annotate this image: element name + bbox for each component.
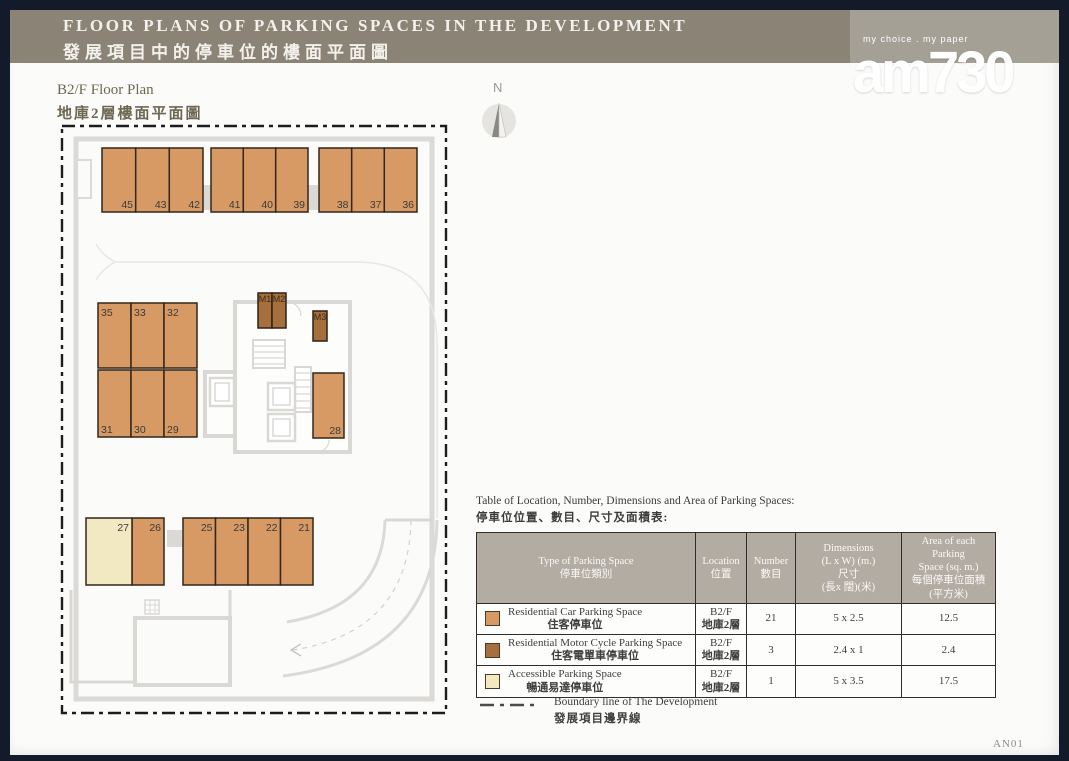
page-title-en: FLOOR PLANS OF PARKING SPACES IN THE DEV…	[63, 16, 687, 36]
number-cell: 1	[747, 666, 796, 697]
loc-en: B2/F	[700, 637, 742, 650]
page-title-zh: 發展項目中的停車位的樓面平面圖	[63, 38, 687, 63]
stall-label: 35	[101, 307, 113, 319]
stall-label: 42	[188, 199, 200, 211]
logo-wordmark: am730	[853, 44, 1053, 99]
stall-label: 28	[329, 425, 341, 437]
area-cell: 12.5	[902, 603, 996, 634]
floor-plan-title-en: B2/F Floor Plan	[57, 82, 203, 99]
col-area: Area of each Parking Space (sq. m.) 每個停車…	[902, 533, 996, 604]
legend-boundary-en: Boundary line of The Development	[554, 696, 717, 708]
stall-label: 27	[117, 522, 129, 534]
stall-label: 31	[101, 424, 113, 436]
parking-table-section: Table of Location, Number, Dimensions an…	[476, 495, 1011, 698]
number-cell: 21	[747, 603, 796, 634]
type-zh: 住客停車位	[508, 619, 642, 632]
stall-label: 29	[167, 424, 179, 436]
car-swatch	[485, 611, 500, 626]
stall-label: 43	[155, 199, 167, 211]
north-label: N	[493, 80, 502, 95]
area-cell: 17.5	[902, 666, 996, 697]
moto-swatch	[485, 643, 500, 658]
loc-zh: 地庫2層	[700, 619, 742, 632]
stall-label: 21	[298, 522, 310, 534]
loc-zh: 地庫2層	[700, 682, 742, 695]
wall-notch	[77, 160, 91, 198]
stall-label: M3	[314, 312, 327, 322]
loc-en: B2/F	[700, 606, 742, 619]
col-number: Number 數目	[747, 533, 796, 604]
stall-label: 23	[233, 522, 245, 534]
boundary-legend: Boundary line of The Development 發展項目邊界線	[480, 696, 717, 726]
stall-label: 25	[201, 522, 213, 534]
stall-label: 38	[337, 199, 349, 211]
table-row: Residential Car Parking Space 住客停車位 B2/F…	[477, 603, 996, 634]
dimensions-cell: 5 x 2.5	[796, 603, 902, 634]
floor-plan-title: B2/F Floor Plan 地庫2層樓面平面圖	[57, 82, 203, 123]
document-page: FLOOR PLANS OF PARKING SPACES IN THE DEV…	[10, 10, 1059, 755]
stall-label: 39	[293, 199, 305, 211]
table-header-row: Type of Parking Space 停車位類別 Location 位置 …	[477, 533, 996, 604]
stall-label: 33	[134, 307, 146, 319]
stall-label: 26	[149, 522, 161, 534]
type-en: Accessible Parking Space	[508, 668, 622, 681]
number-cell: 3	[747, 635, 796, 666]
dimensions-cell: 2.4 x 1	[796, 635, 902, 666]
stall-label: 30	[134, 424, 146, 436]
floor-plan-drawing: 45 43 42 41 40 39 38 37 36 35 33 32 31 3…	[55, 120, 465, 750]
stall-label: M1	[259, 294, 272, 304]
col-location: Location 位置	[696, 533, 747, 604]
table-title-zh: 停車位位置、數目、尺寸及面積表:	[476, 509, 1011, 525]
type-zh: 暢通易達停車位	[508, 682, 622, 695]
type-en: Residential Motor Cycle Parking Space	[508, 637, 682, 650]
table-row: Accessible Parking Space 暢通易達停車位 B2/F 地庫…	[477, 666, 996, 697]
col-dimensions: Dimensions (L x W) (m.) 尺寸 (長x 闊)(米)	[796, 533, 902, 604]
page-code: AN01	[993, 738, 1024, 750]
type-en: Residential Car Parking Space	[508, 606, 642, 619]
type-zh: 住客電單車停車位	[508, 650, 682, 663]
north-arrow: N	[477, 80, 521, 144]
loc-en: B2/F	[700, 668, 742, 681]
boundary-line-icon	[480, 702, 540, 708]
stall-label: 36	[402, 199, 414, 211]
stall-label: M2	[273, 294, 286, 304]
stall-label: 41	[229, 199, 241, 211]
legend-boundary-zh: 發展項目邊界線	[554, 710, 717, 726]
dimensions-cell: 5 x 3.5	[796, 666, 902, 697]
parking-table: Type of Parking Space 停車位類別 Location 位置 …	[476, 532, 996, 698]
am730-logo: my choice . my paper am730	[853, 34, 1053, 97]
accessible-swatch	[485, 674, 500, 689]
loc-zh: 地庫2層	[700, 650, 742, 663]
page-title: FLOOR PLANS OF PARKING SPACES IN THE DEV…	[63, 16, 687, 63]
col-type: Type of Parking Space 停車位類別	[477, 533, 696, 604]
stall-label: 37	[370, 199, 382, 211]
stall-label: 32	[167, 307, 179, 319]
table-title-en: Table of Location, Number, Dimensions an…	[476, 495, 1011, 507]
area-cell: 2.4	[902, 635, 996, 666]
stall-label: 22	[266, 522, 278, 534]
stall-label: 40	[261, 199, 273, 211]
table-row: Residential Motor Cycle Parking Space 住客…	[477, 635, 996, 666]
stall-label: 45	[121, 199, 133, 211]
